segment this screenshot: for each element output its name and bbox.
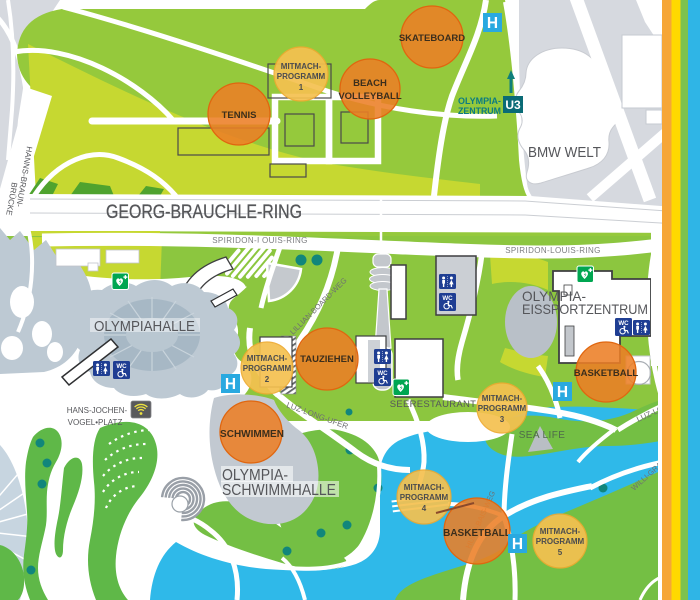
svg-text:PROGRAMM: PROGRAMM: [400, 493, 449, 502]
svg-text:MITMACH-: MITMACH-: [404, 483, 445, 492]
svg-text:TENNIS: TENNIS: [222, 110, 257, 121]
svg-text:BMW WELT: BMW WELT: [528, 144, 601, 161]
svg-text:TAUZIEHEN: TAUZIEHEN: [300, 354, 354, 365]
svg-text:4: 4: [422, 504, 427, 513]
svg-text:BASKETBALL: BASKETBALL: [574, 368, 639, 379]
svg-text:SEA LIFE: SEA LIFE: [519, 430, 566, 441]
svg-text:PROGRAMM: PROGRAMM: [478, 404, 527, 413]
svg-text:VOGEL•PLATZ: VOGEL•PLATZ: [68, 418, 123, 427]
svg-text:5: 5: [558, 548, 563, 557]
svg-text:1: 1: [299, 83, 304, 92]
svg-text:EISSPORTZENTRUM: EISSPORTZENTRUM: [522, 301, 648, 317]
svg-text:ZENTRUM: ZENTRUM: [458, 106, 501, 117]
svg-text:MITMACH-: MITMACH-: [482, 394, 523, 403]
svg-text:HANS-JOCHEN-: HANS-JOCHEN-: [67, 406, 128, 415]
svg-text:BASKETBALL: BASKETBALL: [443, 528, 511, 539]
svg-text:PROGRAMM: PROGRAMM: [536, 537, 585, 546]
svg-text:2: 2: [265, 375, 270, 384]
svg-text:SPIRIDON-LOUIS-RING: SPIRIDON-LOUIS-RING: [505, 246, 601, 255]
svg-text:MITMACH-: MITMACH-: [281, 62, 322, 71]
svg-text:GEORG-BRAUCHLE-RING: GEORG-BRAUCHLE-RING: [106, 202, 302, 223]
svg-text:BEACH: BEACH: [353, 78, 387, 89]
svg-text:MITMACH-: MITMACH-: [247, 354, 288, 363]
svg-text:PROGRAMM: PROGRAMM: [243, 364, 292, 373]
svg-text:SCHWIMMEN: SCHWIMMEN: [220, 429, 284, 440]
svg-text:3: 3: [500, 415, 505, 424]
svg-text:VOLLEYBALL: VOLLEYBALL: [338, 91, 402, 102]
svg-text:U3: U3: [505, 98, 521, 112]
svg-text:SKATEBOARD: SKATEBOARD: [399, 33, 465, 44]
svg-text:MITMACH-: MITMACH-: [540, 527, 581, 536]
svg-text:OLYMPIAHALLE: OLYMPIAHALLE: [94, 318, 195, 335]
svg-text:SCHWIMMHALLE: SCHWIMMHALLE: [222, 482, 336, 499]
svg-text:PROGRAMM: PROGRAMM: [277, 72, 326, 81]
svg-text:SEERESTAURANT: SEERESTAURANT: [390, 399, 477, 410]
